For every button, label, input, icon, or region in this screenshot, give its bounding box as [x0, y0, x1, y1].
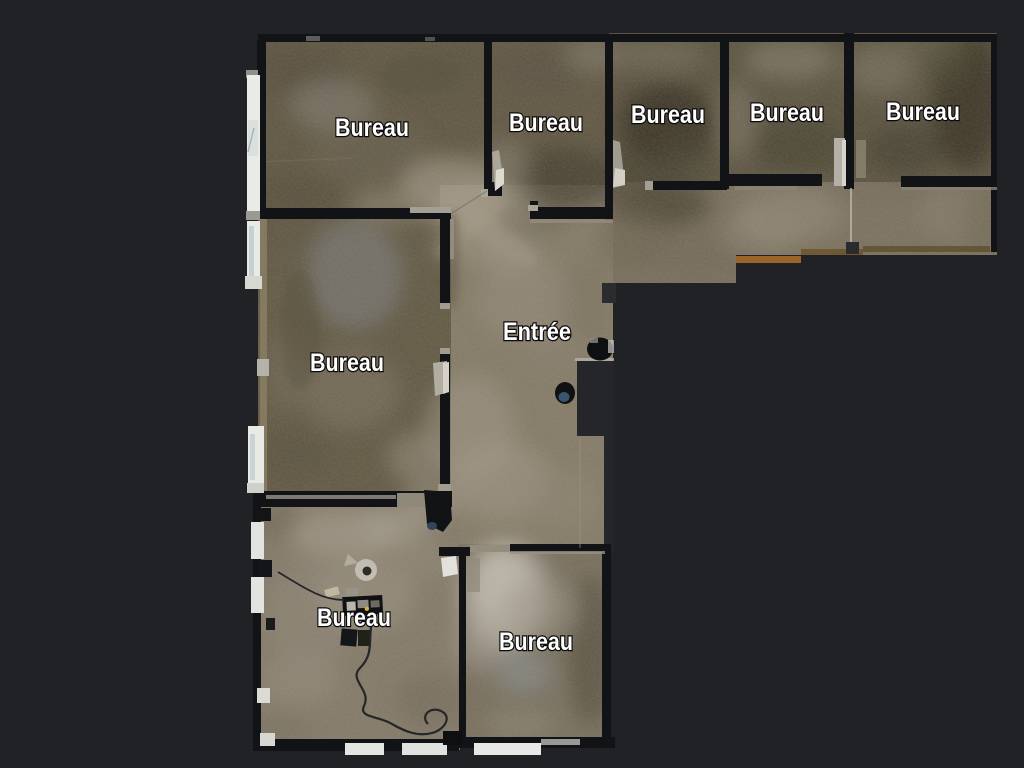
svg-text:Bureau: Bureau	[886, 98, 960, 126]
svg-text:Bureau: Bureau	[317, 604, 391, 632]
svg-text:Bureau: Bureau	[499, 628, 573, 656]
svg-text:Bureau: Bureau	[310, 349, 384, 377]
svg-text:Entrée: Entrée	[503, 318, 571, 346]
svg-text:Bureau: Bureau	[509, 109, 583, 137]
svg-text:Bureau: Bureau	[750, 99, 824, 127]
svg-text:Bureau: Bureau	[631, 101, 705, 129]
svg-text:Bureau: Bureau	[335, 114, 409, 142]
